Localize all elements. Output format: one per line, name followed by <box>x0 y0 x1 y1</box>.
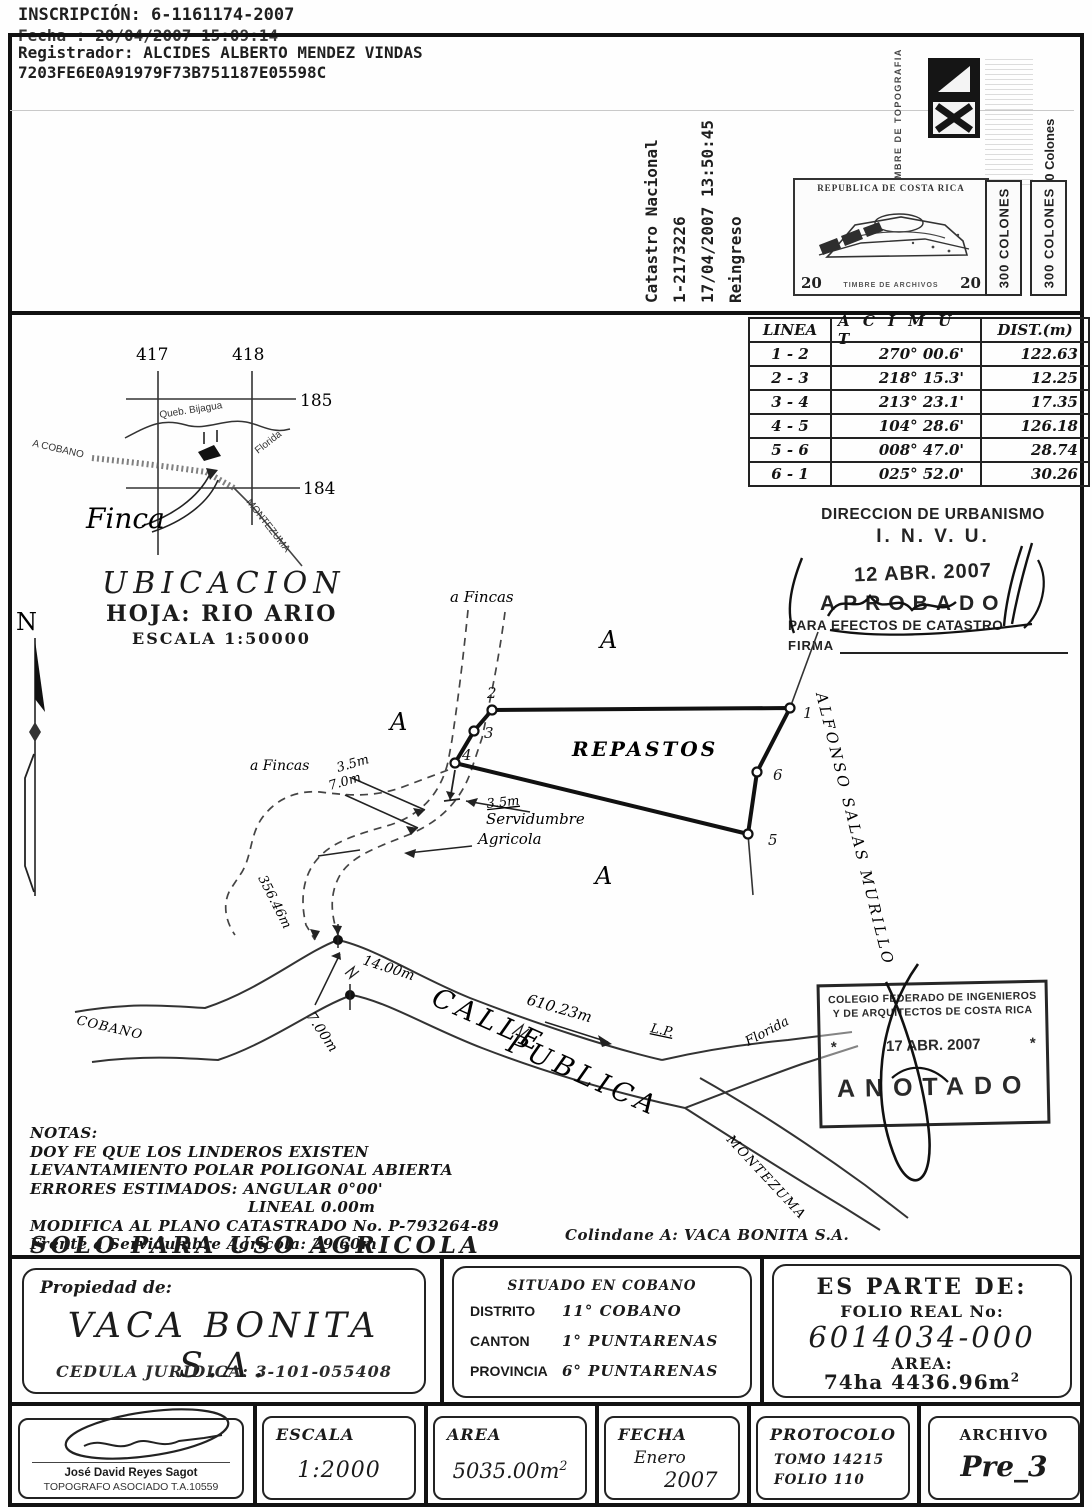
colones-stamp-2: 300 COLONES <box>1030 180 1067 296</box>
vertical-divider <box>595 1402 599 1505</box>
creek-label: Queb. Bijagua <box>159 400 224 421</box>
property-label: Propiedad de: <box>40 1278 172 1298</box>
area-box: AREA 5035.00m2 <box>433 1416 587 1500</box>
colones-stamp-2-value: 300 COLONES <box>1041 188 1056 289</box>
plot-area-value: 5035.00m2 <box>435 1458 585 1483</box>
vertical-divider <box>747 1402 751 1505</box>
a-fincas-left-label: a Fincas <box>250 758 309 774</box>
surveyor-signature <box>52 1408 232 1464</box>
vertex-label-2: 2 <box>486 684 497 702</box>
colegio-signature <box>852 958 982 1203</box>
map-cobano-label: A COBANO <box>31 438 85 461</box>
grid-label-418: 418 <box>232 345 264 365</box>
protocol-folio: FOLIO 110 <box>774 1472 865 1488</box>
notes-line4: LINEAL 0.00m <box>248 1200 499 1215</box>
florida-label: Florida <box>742 1014 792 1050</box>
table-row: 1 - 2270° 00.6'122.63 <box>750 341 1088 365</box>
vertex-label-6: 6 <box>773 766 783 784</box>
publica-label: PUBLICA <box>501 1028 664 1123</box>
table-row: 4 - 5104° 28.6'126.18 <box>750 413 1088 437</box>
grid-label-184: 184 <box>303 479 335 499</box>
surveyor-title: TOPOGRAFO ASOCIADO T.A.10559 <box>20 1481 242 1493</box>
property-box: Propiedad de: VACA BONITA S.A. CEDULA JU… <box>22 1268 426 1394</box>
notes-line2: LEVANTAMIENTO POLAR POLIGONAL ABIERTA <box>30 1163 499 1178</box>
divider-line <box>10 110 1074 111</box>
provincia-label: PROVINCIA <box>470 1363 552 1379</box>
archivos-stamp: REPUBLICA DE COSTA RICA 20 TIMBRE DE ARC… <box>793 178 989 296</box>
cobano-label: COBANO <box>75 1013 144 1043</box>
col-acimut: A C I M U T <box>832 319 982 341</box>
footer-divider-1 <box>8 1255 1080 1259</box>
colegio-star-left: * <box>831 1039 837 1056</box>
date-year: 2007 <box>664 1468 717 1492</box>
servidumbre-leader <box>408 846 472 853</box>
dist-7-label: 7.00m <box>303 1009 341 1055</box>
folio-box: ES PARTE DE: FOLIO REAL No: 6014034-000 … <box>772 1264 1072 1398</box>
table-row: 3 - 4213° 23.1'17.35 <box>750 389 1088 413</box>
dist-610-label: 610.23m <box>525 991 594 1027</box>
vertex-label-3: 3 <box>484 724 494 742</box>
dist-14-label: 14.00m <box>361 953 417 985</box>
survey-table: LINEA A C I M U T DIST.(m) 1 - 2270° 00.… <box>748 317 1090 487</box>
notes-line5: MODIFICA AL PLANO CATASTRADO No. P-79326… <box>30 1219 499 1234</box>
catastro-reingreso: Reingreso <box>726 216 745 303</box>
vertical-divider <box>424 1402 428 1505</box>
distrito-label: DISTRITO <box>470 1303 552 1319</box>
table-row: 2 - 3218° 15.3'12.25 <box>750 365 1088 389</box>
dim-tick-4-head <box>446 791 455 800</box>
dist-356-label: 356.46m <box>254 873 294 931</box>
stamp-denomination-right: 20 <box>960 274 981 292</box>
stamp-denomination-left: 20 <box>801 274 822 292</box>
map-florida-label: Florida <box>253 429 284 457</box>
grid-label-185: 185 <box>300 391 332 411</box>
adjacent-label-a1: A <box>598 626 617 654</box>
vertex-label-5: 5 <box>768 831 778 849</box>
zigzag-14 <box>345 967 359 978</box>
protocol-box: PROTOCOLO TOMO 14215 FOLIO 110 <box>756 1416 910 1500</box>
vertical-divider <box>760 1255 764 1405</box>
property-cedula: CEDULA JURIDICA: 3-101-055408 <box>24 1362 424 1381</box>
canton-value: 1° PUNTARENAS <box>562 1332 718 1350</box>
date-month: Enero <box>634 1448 686 1468</box>
dim-arrowheads-left <box>406 808 425 835</box>
grid-label-417: 417 <box>136 345 168 365</box>
dim-70-left: 7.0m <box>327 770 363 794</box>
adjacent-label-a2: A <box>388 708 407 736</box>
vertex-label-4: 4 <box>461 746 472 764</box>
boundary-extension-5 <box>748 834 753 895</box>
adjacent-label-a3: A <box>593 862 612 890</box>
servidumbre-label-2: Agricola <box>476 830 542 848</box>
topografia-stamp-value: 10 Colones <box>1042 119 1057 188</box>
dim-7-arrowhead <box>331 952 341 960</box>
topografia-stamp-title: TIMBRE DE TOPOGRAFIA <box>893 48 903 190</box>
notes-line3: ERRORES ESTIMADOS: ANGULAR 0°00' <box>30 1182 499 1197</box>
es-parte-title: ES PARTE DE: <box>774 1274 1070 1300</box>
stamp-cancellation-marks <box>985 55 1033 185</box>
provincia-value: 6° PUNTARENAS <box>562 1362 718 1380</box>
situado-line: SITUADO EN COBANO <box>454 1278 750 1294</box>
servidumbre-leader-head <box>404 849 416 858</box>
scale-box: ESCALA 1:2000 <box>262 1416 416 1500</box>
location-map: 417 418 185 184 Queb. Bijagua A COBANO F… <box>0 330 400 570</box>
catastro-number: 1-2173226 <box>670 216 689 303</box>
dim-7-arrow <box>315 954 340 1005</box>
finca-marker-ticks <box>204 430 217 444</box>
notes-line1: DOY FE QUE LOS LINDEROS EXISTEN <box>30 1145 499 1160</box>
stamp-illustration <box>803 195 979 267</box>
protocol-tomo: TOMO 14215 <box>774 1452 884 1468</box>
table-row: 5 - 6008° 47.0'28.74 <box>750 437 1088 461</box>
colindante-note: Colindane A: VACA BONITA S.A. <box>565 1226 849 1244</box>
notes-title: NOTAS: <box>30 1126 499 1141</box>
canton-label: CANTON <box>470 1333 552 1349</box>
a-fincas-top-label: a Fincas <box>450 588 514 606</box>
vertical-divider <box>917 1402 921 1505</box>
map-montezuma-label: MONTEZUMA <box>244 497 293 555</box>
stamp-caption: TIMBRE DE ARCHIVOS <box>843 282 938 289</box>
inscription-number: INSCRIPCIÓN: 6-1161174-2007 <box>18 5 294 25</box>
survey-table-header: LINEA A C I M U T DIST.(m) <box>750 319 1088 341</box>
vertical-divider <box>253 1402 257 1505</box>
area-value: 74ha 4436.96m2 <box>774 1370 1070 1394</box>
col-dist: DIST.(m) <box>982 319 1088 341</box>
protocol-label: PROTOCOLO <box>770 1425 896 1444</box>
table-row: 6 - 1025° 52.0'30.26 <box>750 461 1088 485</box>
creek-line <box>125 421 290 438</box>
folio-real-number: 6014034-000 <box>774 1320 1070 1354</box>
date-label: FECHA <box>618 1425 687 1444</box>
catastro-label: Catastro Nacional <box>642 139 661 303</box>
colones-stamp-1: 300 COLONES <box>985 180 1022 296</box>
dist-610-arrowhead <box>598 1035 612 1047</box>
archive-box: ARCHIVO Pre_3 <box>928 1416 1080 1500</box>
dist-610-arrow <box>545 1022 608 1042</box>
scale-label: ESCALA <box>276 1425 355 1444</box>
vertical-divider <box>440 1255 444 1405</box>
finca-label: Finca <box>85 502 165 535</box>
finca-marker <box>198 445 221 461</box>
plot-area-label: AREA <box>447 1425 501 1444</box>
colegio-star-right: * <box>1030 1035 1036 1052</box>
topografia-stamp-logo-icon <box>928 58 980 138</box>
east-owner-label: ALFONSO SALAS MURILLO <box>812 689 898 968</box>
distrito-value: 11° COBANO <box>562 1302 682 1320</box>
catastro-datetime: 17/04/2007 13:50:45 <box>698 120 717 303</box>
vertex-label-1: 1 <box>803 704 813 722</box>
servidumbre-label-1: Servidumbre <box>486 810 585 828</box>
folio-real-label: FOLIO REAL No: <box>774 1302 1070 1321</box>
location-box: SITUADO EN COBANO DISTRITO 11° COBANO CA… <box>452 1266 752 1398</box>
col-linea: LINEA <box>750 319 832 341</box>
date-box: FECHA Enero 2007 <box>604 1416 740 1500</box>
repastos-label: REPASTOS <box>571 737 718 761</box>
scale-value: 1:2000 <box>264 1458 414 1483</box>
surveyor-name: José David Reyes Sagot <box>20 1467 242 1479</box>
cadastral-plan-page: INSCRIPCIÓN: 6-1161174-2007 Fecha : 20/0… <box>0 0 1092 1510</box>
archive-label: ARCHIVO <box>930 1426 1078 1444</box>
archive-value: Pre_3 <box>930 1450 1078 1483</box>
archivos-stamp-country: REPUBLICA DE COSTA RICA <box>795 183 987 193</box>
colones-stamp-1-value: 300 COLONES <box>996 188 1011 289</box>
lp-label: L.P. <box>648 1021 675 1041</box>
invu-line1: DIRECCION DE URBANISMO <box>782 506 1084 524</box>
